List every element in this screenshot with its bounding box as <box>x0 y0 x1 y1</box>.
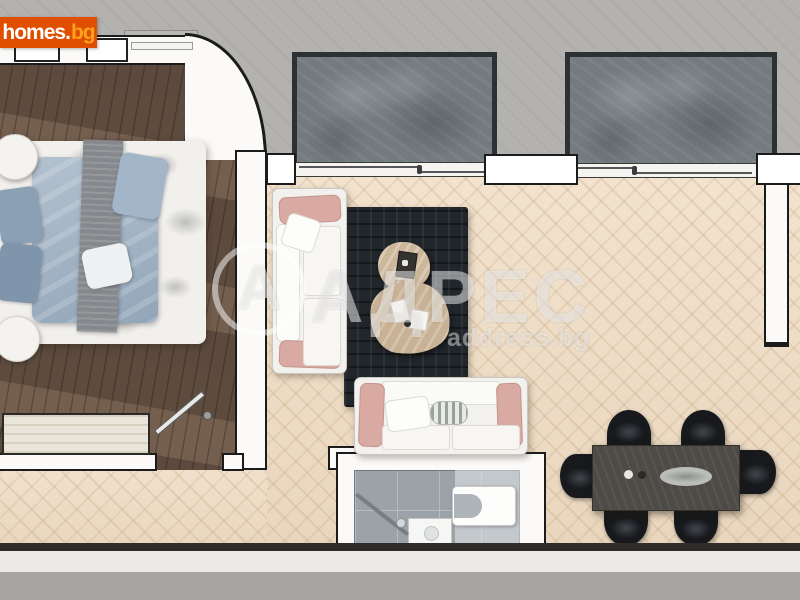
right-exterior-wall <box>764 183 789 347</box>
door-handle-icon <box>632 166 637 175</box>
seat-cushion <box>452 425 520 450</box>
window-between-balconies <box>484 154 578 185</box>
window-sill <box>756 153 800 185</box>
sliding-panel <box>634 172 752 174</box>
bed-pillow <box>0 242 43 304</box>
sliding-panel <box>419 171 487 173</box>
bathroom-sink <box>454 494 482 518</box>
door-handle-icon <box>417 165 422 174</box>
floorplan-render: А АДРЕС address.bg homes.bg <box>0 0 800 600</box>
dresser <box>2 413 150 455</box>
dining-chair <box>736 450 776 494</box>
exterior-ground <box>0 572 800 600</box>
sliding-panel <box>299 166 421 168</box>
door-handle-icon <box>396 518 406 528</box>
white-pillow <box>384 395 432 433</box>
bedroom-bottom-wall <box>222 453 244 471</box>
table-decor <box>624 470 633 479</box>
bottom-wall-band <box>0 551 800 573</box>
window-sill <box>266 153 296 185</box>
bedroom-bottom-wall <box>0 453 157 471</box>
sliding-door-right <box>569 163 757 178</box>
logo-text-primary: homes <box>2 21 65 45</box>
logo-text-suffix: bg <box>71 21 95 45</box>
drain-icon <box>424 526 439 541</box>
table-decor <box>638 471 646 479</box>
homes-bg-logo: homes.bg <box>0 17 97 48</box>
watermark-monogram: А <box>237 254 282 323</box>
bed-pillow <box>0 185 44 246</box>
bed-blanket-runner <box>77 139 124 332</box>
bottom-exterior-wall <box>0 543 800 551</box>
serving-platter <box>660 467 712 486</box>
watermark-domain: address.bg <box>447 324 590 353</box>
sliding-door-left <box>294 162 492 177</box>
balcony-left <box>292 52 497 172</box>
door-handle-icon <box>203 411 212 420</box>
sliding-panel <box>574 167 636 169</box>
watermark-monogram-circle: А <box>212 242 306 336</box>
balcony-right <box>565 52 777 174</box>
watermark-agency-name: АДРЕС <box>310 260 591 334</box>
striped-roll-pillow <box>430 401 468 425</box>
bedroom-window-glazing <box>131 42 193 50</box>
